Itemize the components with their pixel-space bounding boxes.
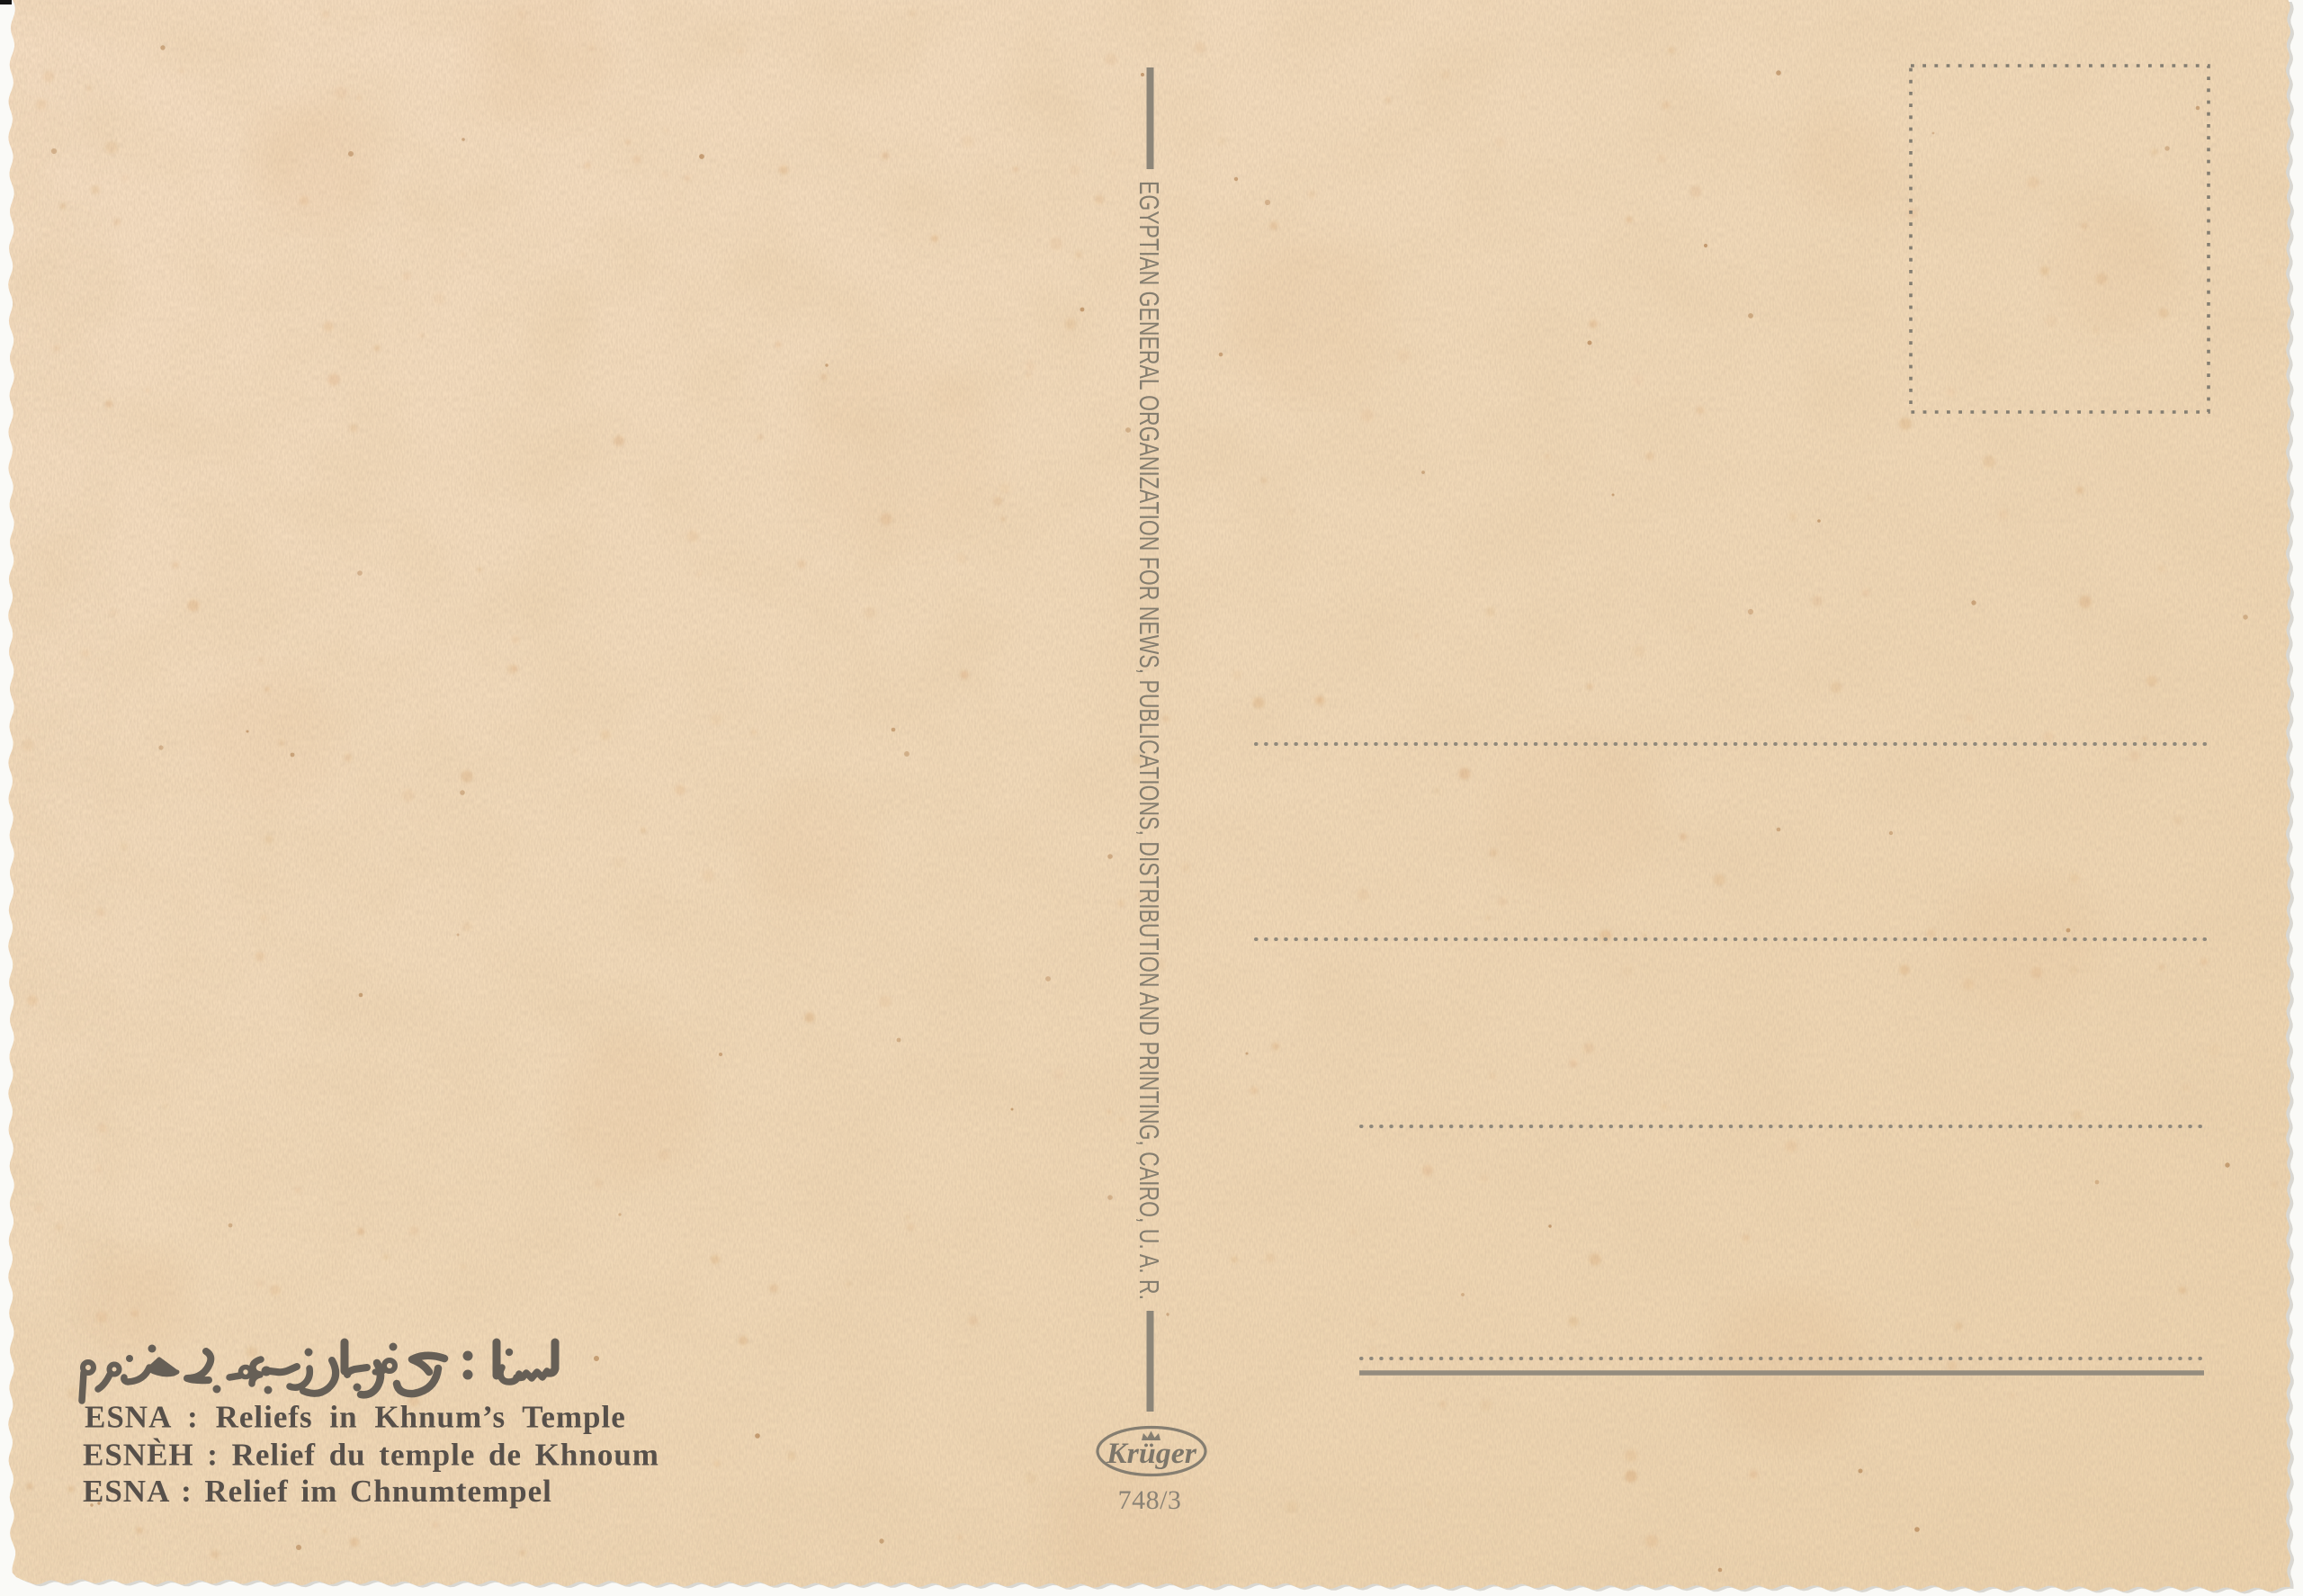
svg-text:748/3: 748/3 <box>1118 1485 1182 1515</box>
svg-text:ESNÈH : Relief du temple de Kh: ESNÈH : Relief du temple de Khnoum <box>83 1438 659 1473</box>
svg-text:ESNA : Reliefs in Khnum’s Temp: ESNA : Reliefs in Khnum’s Temple <box>85 1400 626 1435</box>
svg-text:Krüger: Krüger <box>1106 1438 1197 1470</box>
svg-text:ESNA : Relief im Chnumtempel: ESNA : Relief im Chnumtempel <box>83 1474 552 1509</box>
svg-text:EGYPTIAN GENERAL ORGANIZATION: EGYPTIAN GENERAL ORGANIZATION FOR NEWS, … <box>1134 181 1165 1300</box>
